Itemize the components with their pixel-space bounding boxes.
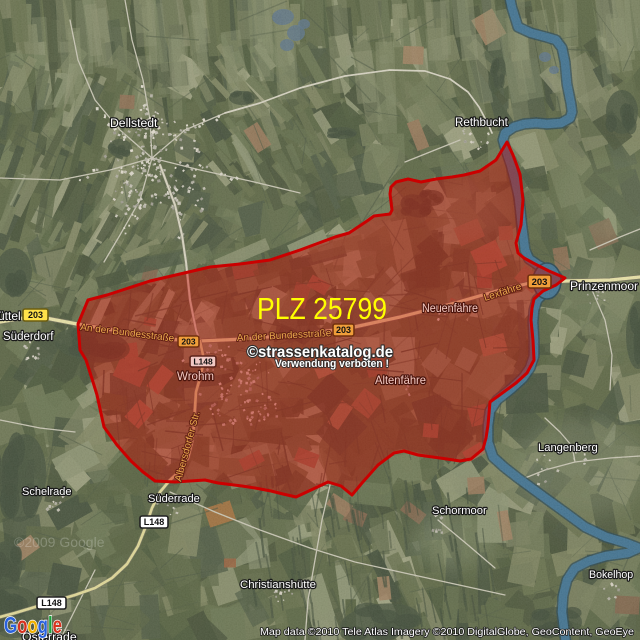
svg-text:Altenfähre: Altenfähre: [375, 373, 426, 387]
svg-text:203: 203: [28, 310, 43, 320]
svg-text:Prinzenmoor: Prinzenmoor: [570, 279, 638, 293]
svg-text:L148: L148: [41, 598, 62, 608]
svg-text:Langenberg: Langenberg: [538, 442, 598, 454]
svg-text:üttel: üttel: [0, 309, 21, 323]
svg-text:Schormoor: Schormoor: [432, 505, 487, 517]
svg-text:Süderdorf: Süderdorf: [3, 331, 54, 343]
svg-text:Rethbucht: Rethbucht: [455, 116, 509, 129]
svg-text:Süderrade: Süderrade: [148, 493, 200, 505]
svg-text:Schelrade: Schelrade: [22, 486, 72, 498]
svg-text:Map data ©2010 Tele Atlas Ima: Map data ©2010 Tele Atlas Imagery ©2010 …: [260, 627, 634, 638]
svg-text:203: 203: [181, 337, 195, 347]
svg-text:©2009 Google: ©2009 Google: [14, 534, 105, 550]
svg-text:Neuenfähre: Neuenfähre: [422, 301, 478, 315]
svg-text:PLZ 25799: PLZ 25799: [257, 291, 387, 326]
svg-text:Wrohm: Wrohm: [177, 369, 214, 383]
svg-text:Bokelhop: Bokelhop: [589, 569, 633, 581]
svg-text:203: 203: [532, 277, 548, 288]
svg-text:Google: Google: [4, 612, 62, 638]
svg-text:203: 203: [336, 325, 351, 335]
svg-text:Dellstedt: Dellstedt: [110, 116, 158, 130]
svg-text:Christianshütte: Christianshütte: [240, 579, 316, 591]
svg-text:Verwendung verboten !: Verwendung verboten !: [275, 358, 389, 370]
svg-text:L148: L148: [144, 517, 165, 527]
svg-text:L148: L148: [193, 357, 213, 367]
